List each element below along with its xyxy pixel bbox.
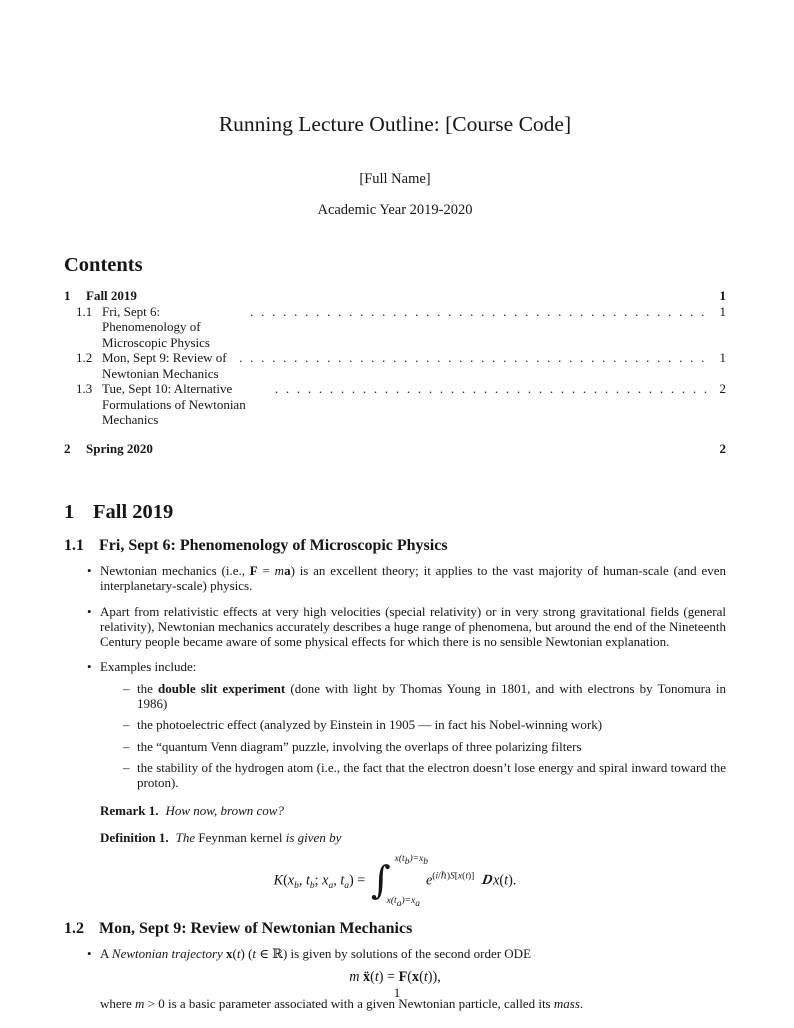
definition-label: Definition 1.: [100, 830, 169, 845]
toc-page-number: 2: [712, 441, 726, 457]
section-title: Fall 2019: [93, 500, 173, 524]
subsection-number: 1.2: [64, 919, 99, 938]
table-of-contents: Contents 1 Fall 2019 1 1.1 Fri, Sept 6: …: [64, 253, 726, 456]
list-item: • A Newtonian trajectory x(t) (t ∈ ℝ) is…: [64, 946, 726, 961]
toc-entry-1-1[interactable]: 1.1 Fri, Sept 6: Phenomenology of Micros…: [64, 304, 726, 351]
subsection-heading-1-2: 1.2 Mon, Sept 9: Review of Newtonian Mec…: [64, 919, 726, 938]
newton-ode-equation: m ẍ(t) = F(x(t)),: [64, 970, 726, 985]
toc-page-number: 2: [712, 381, 726, 397]
toc-title: Mon, Sept 9: Review of Newtonian Mechani…: [102, 350, 233, 381]
remark-block: Remark 1.How now, brown cow?: [100, 803, 726, 818]
dash-icon: –: [123, 760, 137, 791]
toc-number: 1.2: [76, 350, 102, 366]
toc-entry-1-3[interactable]: 1.3 Tue, Sept 10: Alternative Formulatio…: [64, 381, 726, 428]
page-number: 1: [0, 985, 794, 1000]
toc-page-number: 1: [712, 350, 726, 366]
list-item-text: Newtonian mechanics (i.e., F = ma) is an…: [100, 563, 726, 594]
toc-title: Spring 2020: [86, 441, 153, 457]
contents-heading: Contents: [64, 253, 726, 277]
title-block: Running Lecture Outline: [Course Code] […: [64, 0, 726, 219]
remark-label: Remark 1.: [100, 803, 159, 818]
sub-list-item-text: the double slit experiment (done with li…: [137, 681, 726, 712]
subsection-title: Mon, Sept 9: Review of Newtonian Mechani…: [99, 919, 412, 938]
toc-number: 1.3: [76, 381, 102, 397]
toc-number: 2: [64, 441, 86, 457]
subsection-number: 1.1: [64, 536, 99, 555]
toc-page-number: 1: [712, 304, 726, 320]
list-item-text: Apart from relativistic effects at very …: [100, 604, 726, 650]
toc-title: Fall 2019: [86, 288, 137, 304]
section-number: 1: [64, 500, 93, 524]
subsection-title: Fri, Sept 6: Phenomenology of Microscopi…: [99, 536, 448, 555]
bullet-list: • Newtonian mechanics (i.e., F = ma) is …: [64, 563, 726, 791]
list-item-text: A Newtonian trajectory x(t) (t ∈ ℝ) is g…: [100, 946, 726, 961]
sub-list-item: – the double slit experiment (done with …: [64, 681, 726, 712]
author: [Full Name]: [64, 171, 726, 188]
bullet-icon: •: [87, 659, 100, 674]
toc-number: 1.1: [76, 304, 102, 320]
section-heading: 1 Fall 2019: [64, 500, 726, 524]
bullet-list: • A Newtonian trajectory x(t) (t ∈ ℝ) is…: [64, 946, 726, 961]
subsection-heading-1-1: 1.1 Fri, Sept 6: Phenomenology of Micros…: [64, 536, 726, 555]
dash-icon: –: [123, 739, 137, 754]
sub-list-item-text: the stability of the hydrogen atom (i.e.…: [137, 760, 726, 791]
sub-list-item: – the “quantum Venn diagram” puzzle, inv…: [64, 739, 726, 754]
list-item: • Apart from relativistic effects at ver…: [64, 604, 726, 650]
toc-page-number: 1: [712, 288, 726, 304]
toc-entry-spring-2020[interactable]: 2 Spring 2020 2: [64, 441, 726, 457]
toc-number: 1: [64, 288, 86, 304]
sub-bullet-list: – the double slit experiment (done with …: [64, 681, 726, 791]
bullet-icon: •: [87, 563, 100, 594]
toc-entry-1-2[interactable]: 1.2 Mon, Sept 9: Review of Newtonian Mec…: [64, 350, 726, 381]
dot-leader: [275, 381, 707, 397]
feynman-kernel-equation: K(xb, tb; xa, ta) = ∫x(tb)=xbx(ta)=xae(i…: [64, 855, 726, 907]
document-title: Running Lecture Outline: [Course Code]: [64, 112, 726, 137]
dot-leader: [250, 304, 707, 320]
academic-year: Academic Year 2019-2020: [64, 202, 726, 219]
sub-list-item: – the photoelectric effect (analyzed by …: [64, 717, 726, 732]
sub-list-item: – the stability of the hydrogen atom (i.…: [64, 760, 726, 791]
document-page: Running Lecture Outline: [Course Code] […: [0, 0, 794, 1028]
list-item: • Examples include:: [64, 659, 726, 674]
bullet-icon: •: [87, 946, 100, 961]
list-item: • Newtonian mechanics (i.e., F = ma) is …: [64, 563, 726, 594]
remark-text: How now, brown cow?: [166, 803, 284, 818]
list-item-text: Examples include:: [100, 659, 726, 674]
definition-block: Definition 1.The Feynman kernel is given…: [100, 830, 726, 845]
toc-title: Fri, Sept 6: Phenomenology of Microscopi…: [102, 304, 244, 351]
bullet-icon: •: [87, 604, 100, 650]
toc-entry-fall-2019[interactable]: 1 Fall 2019 1: [64, 288, 726, 304]
definition-text: The Feynman kernel is given by: [176, 830, 342, 845]
sub-list-item-text: the “quantum Venn diagram” puzzle, invol…: [137, 739, 726, 754]
dash-icon: –: [123, 717, 137, 732]
toc-list: 1 Fall 2019 1 1.1 Fri, Sept 6: Phenomeno…: [64, 288, 726, 456]
dot-leader: [239, 350, 707, 366]
toc-title: Tue, Sept 10: Alternative Formulations o…: [102, 381, 269, 428]
sub-list-item-text: the photoelectric effect (analyzed by Ei…: [137, 717, 726, 732]
section-fall-2019: 1 Fall 2019 1.1 Fri, Sept 6: Phenomenolo…: [64, 500, 726, 1011]
dash-icon: –: [123, 681, 137, 712]
